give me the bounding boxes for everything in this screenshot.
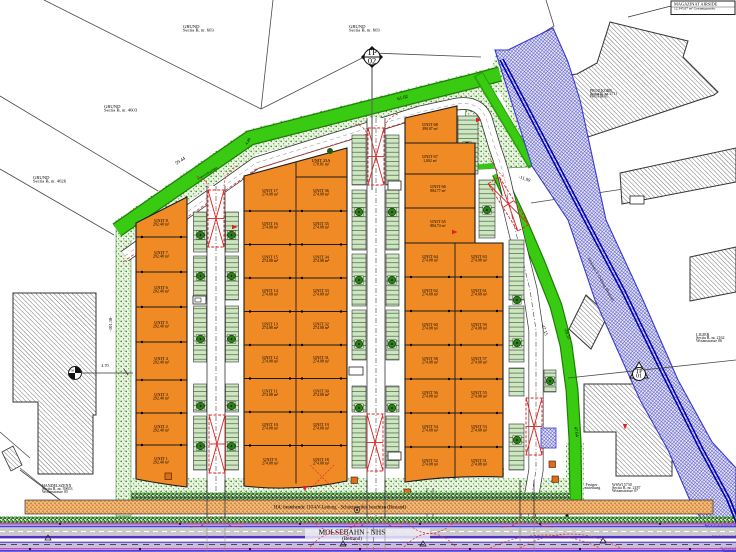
svg-text:Sectia B, nr. 4026: Sectia B, nr. 4026	[33, 179, 67, 184]
svg-text:UNIT 68: UNIT 68	[422, 122, 438, 127]
svg-text:-101.30-: -101.30-	[108, 316, 113, 332]
svg-text:MOLSEBAHN - NHS: MOLSEBAHN - NHS	[319, 528, 386, 537]
svg-text:274.08 m²: 274.08 m²	[262, 392, 279, 397]
svg-text:Wotanstrasse 06: Wotanstrasse 06	[696, 338, 722, 343]
svg-text:274.08 m²: 274.08 m²	[262, 258, 279, 263]
svg-text:274.08 m²: 274.08 m²	[422, 359, 439, 364]
svg-text:02: 02	[368, 57, 376, 66]
svg-text:UNIT 65: UNIT 65	[430, 219, 446, 224]
svg-text:274.08 m²: 274.08 m²	[313, 460, 330, 465]
svg-text:274.08 m²: 274.08 m²	[471, 325, 488, 330]
svg-text:274.08 m²: 274.08 m²	[422, 393, 439, 398]
svg-text:292.40 m²: 292.40 m²	[153, 459, 170, 464]
svg-text:PROFIRAT: PROFIRAT	[590, 95, 609, 99]
svg-text:274.08 m²: 274.08 m²	[471, 291, 488, 296]
svg-text:274.08 m²: 274.08 m²	[471, 427, 488, 432]
svg-text:292.40 m²: 292.40 m²	[153, 253, 170, 258]
svg-text:01: 01	[636, 374, 642, 380]
svg-text:274.08 m²: 274.08 m²	[262, 291, 279, 296]
svg-text:Sectia B, nr. 603: Sectia B, nr. 603	[183, 28, 214, 33]
svg-text:274.08 m²: 274.08 m²	[262, 358, 279, 363]
svg-text:274.08 m²: 274.08 m²	[262, 460, 279, 465]
svg-text:HA: bestehende 110-kV-Leitung: HA: bestehende 110-kV-Leitung - Schutzst…	[274, 506, 406, 511]
svg-text:274.08 m²: 274.08 m²	[262, 224, 279, 229]
svg-text:274.08 m²: 274.08 m²	[313, 425, 330, 430]
svg-text:274.08 m²: 274.08 m²	[313, 325, 330, 330]
svg-text:274.08 m²: 274.08 m²	[313, 291, 330, 296]
svg-text:274.08 m²: 274.08 m²	[313, 358, 330, 363]
svg-text:4.70: 4.70	[101, 363, 108, 368]
svg-text:884.77 m²: 884.77 m²	[430, 189, 446, 193]
svg-text:274.08 m²: 274.08 m²	[422, 291, 439, 296]
svg-text:274.08 m²: 274.08 m²	[471, 393, 488, 398]
svg-text:292.40 m²: 292.40 m²	[153, 288, 170, 293]
svg-text:Sectia B, nr. 4603: Sectia B, nr. 4603	[104, 108, 138, 113]
svg-text:884.74 m²: 884.74 m²	[430, 224, 446, 228]
svg-text:Wotanstrasse 05: Wotanstrasse 05	[42, 489, 68, 494]
svg-text:292.40 m²: 292.40 m²	[153, 427, 170, 432]
svg-text:178.81 m²: 178.81 m²	[313, 161, 330, 166]
svg-text:274.08 m²: 274.08 m²	[313, 258, 330, 263]
svg-text:274.08 m²: 274.08 m²	[262, 191, 279, 196]
svg-text:UNIT 67: UNIT 67	[422, 154, 438, 159]
svg-text:274.08 m²: 274.08 m²	[422, 461, 439, 466]
svg-text:MAGAZINAT AIRSIDE: MAGAZINAT AIRSIDE	[674, 1, 718, 6]
svg-text:274.08 m²: 274.08 m²	[313, 191, 330, 196]
svg-text:TP: TP	[367, 48, 377, 57]
svg-text:274.08 m²: 274.08 m²	[471, 257, 488, 262]
svg-text:(Bestand): (Bestand)	[342, 535, 362, 542]
svg-text:390.07 m²: 390.07 m²	[422, 127, 438, 131]
svg-text:Sectia B, nr. 603: Sectia B, nr. 603	[349, 28, 380, 33]
svg-text:274.08 m²: 274.08 m²	[313, 392, 330, 397]
svg-text:274.08 m²: 274.08 m²	[471, 359, 488, 364]
svg-text:UNIT 66: UNIT 66	[430, 184, 446, 189]
svg-text:750: 750	[69, 369, 75, 373]
svg-text:274.08 m²: 274.08 m²	[262, 425, 279, 430]
svg-text:274.08 m²: 274.08 m²	[313, 224, 330, 229]
svg-text:292.40 m²: 292.40 m²	[153, 359, 170, 364]
svg-text:274.08 m²: 274.08 m²	[422, 325, 439, 330]
svg-text:274.08 m²: 274.08 m²	[262, 325, 279, 330]
svg-text:292.40 m²: 292.40 m²	[153, 323, 170, 328]
svg-text:292.40 m²: 292.40 m²	[153, 395, 170, 400]
svg-text:274.08 m²: 274.08 m²	[471, 461, 488, 466]
svg-text:292.40 m²: 292.40 m²	[153, 221, 170, 226]
svg-text:Wotanstrasse 07: Wotanstrasse 07	[612, 488, 638, 493]
svg-text:274.08 m²: 274.08 m²	[422, 427, 439, 432]
svg-text:274.08 m²: 274.08 m²	[422, 257, 439, 262]
